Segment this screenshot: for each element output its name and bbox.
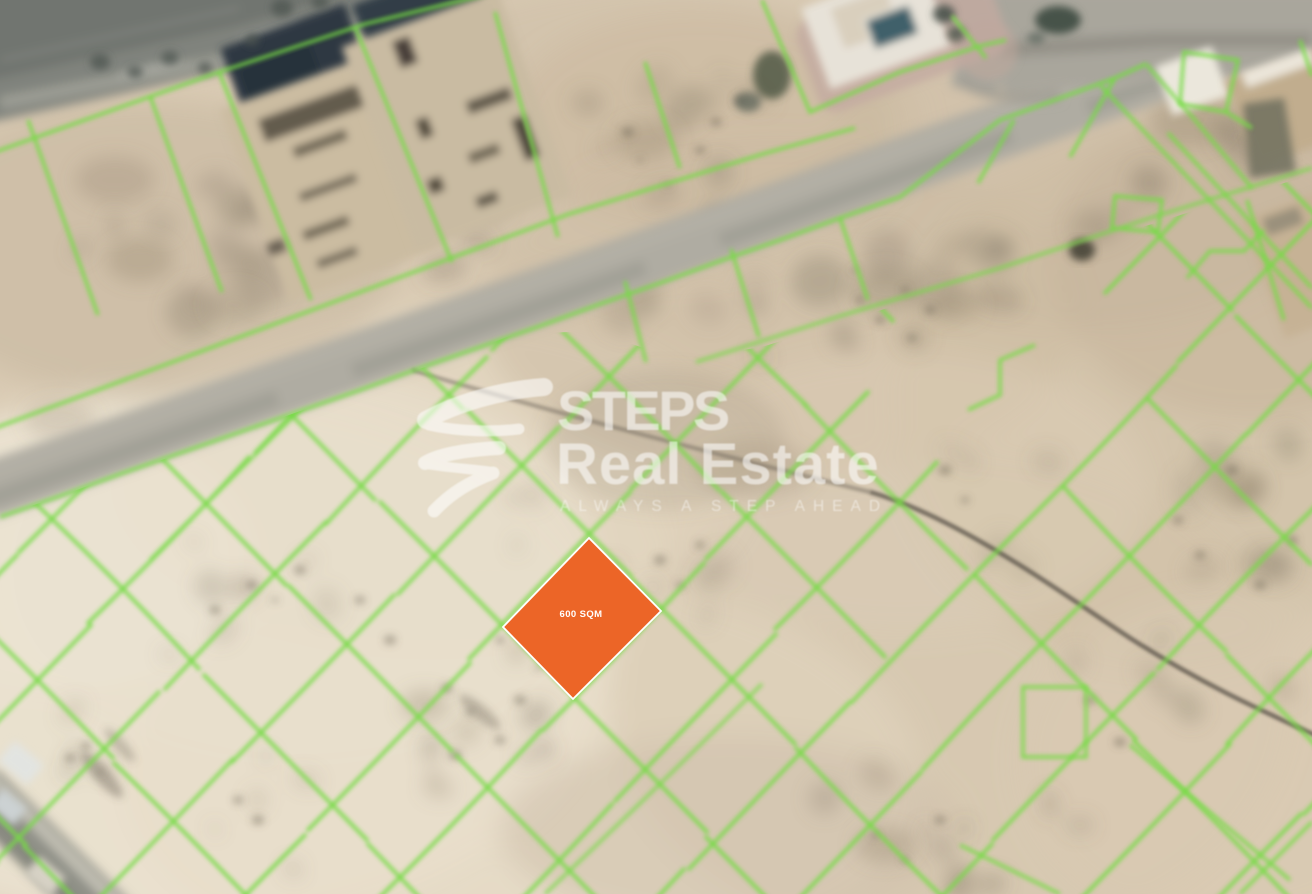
svg-text:Real Estate: Real Estate — [556, 432, 880, 497]
svg-text:ALWAYS A STEP AHEAD: ALWAYS A STEP AHEAD — [560, 498, 888, 515]
svg-text:600 SQM: 600 SQM — [560, 609, 603, 620]
